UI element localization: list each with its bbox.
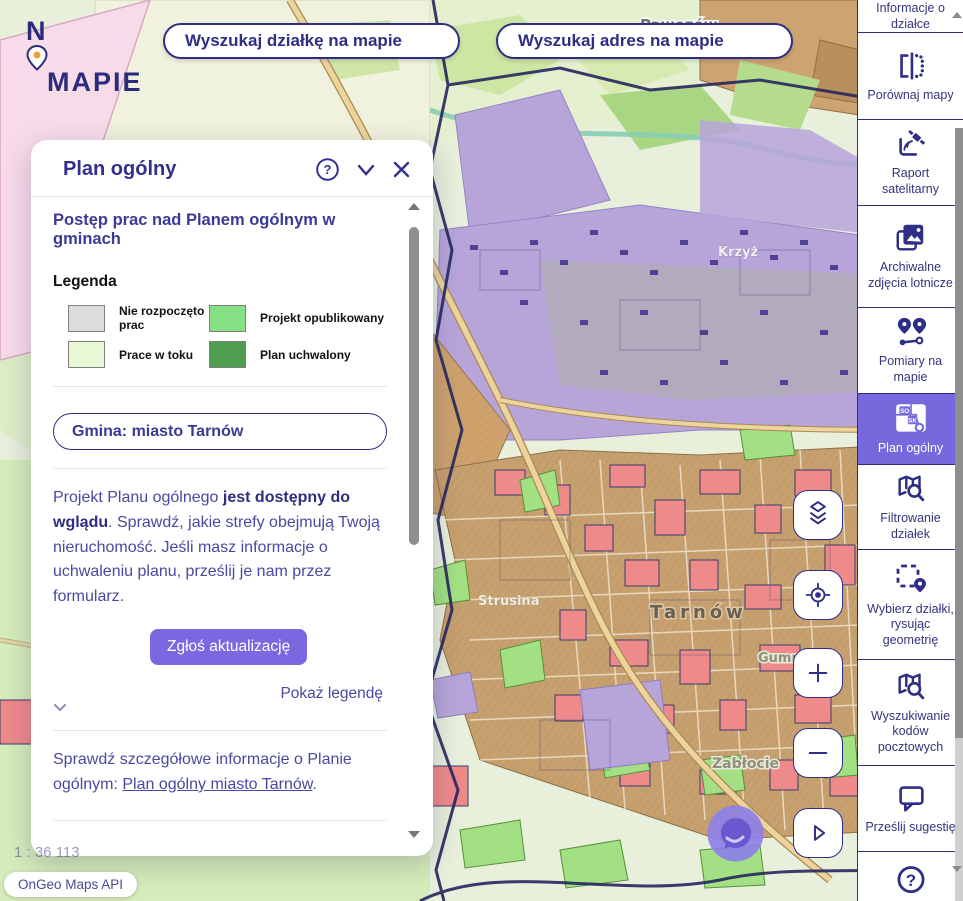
map-label-krzyz: Krzyż xyxy=(718,245,758,260)
panel-title: Plan ogólny xyxy=(63,158,315,181)
postal-codes-map-search-icon xyxy=(893,670,929,704)
layers-icon xyxy=(799,496,837,534)
sidebar-item-archiwalne-zdjecia[interactable]: Archiwalne zdjęcia lotnicze xyxy=(858,206,963,308)
panel-scrollbar[interactable] xyxy=(408,203,420,838)
svg-text:?: ? xyxy=(905,871,915,890)
sidebar-item-label: Wybierz działki, rysując geometrię xyxy=(863,602,959,649)
report-update-button[interactable]: Zgłoś aktualizację xyxy=(150,629,307,665)
sidebar-item-label: Plan ogólny xyxy=(863,441,959,457)
brand-logo-n: N xyxy=(26,16,48,46)
help-icon[interactable]: ? xyxy=(315,157,340,182)
plan-details-link[interactable]: Plan ogólny miasto Tarnów xyxy=(122,776,312,793)
legend-label: Projekt opublikowany xyxy=(260,311,387,325)
plus-icon xyxy=(799,654,837,692)
legend-swatch-adopted xyxy=(209,341,246,368)
show-legend-label: Pokaż legendę xyxy=(280,685,383,702)
geolocate-button[interactable] xyxy=(793,570,843,620)
sidebar-item-wybierz-dzialki[interactable]: Wybierz działki, rysując geometrię xyxy=(858,550,963,660)
progress-heading: Postęp prac nad Planem ogólnym w gminach xyxy=(53,211,387,249)
gmina-select[interactable]: Gmina: miasto Tarnów xyxy=(53,413,387,450)
map-label-tarnow: Tarnów xyxy=(650,602,747,623)
scroll-up-arrow[interactable] xyxy=(408,203,420,210)
legend-swatch-not-started xyxy=(68,305,105,332)
filter-parcels-map-search-icon xyxy=(893,472,929,506)
sidebar-item-filtrowanie-dzialek[interactable]: Filtrowanie działek xyxy=(858,465,963,550)
measurements-icon xyxy=(893,315,929,349)
svg-text:?: ? xyxy=(324,162,332,177)
draw-geometry-icon xyxy=(893,561,929,597)
scrollbar-thumb[interactable] xyxy=(409,227,419,545)
chevron-down-icon xyxy=(53,703,67,712)
zoom-out-button[interactable] xyxy=(793,728,843,778)
sidebar-item-porownaj-mapy[interactable]: Porównaj mapy xyxy=(858,33,963,120)
search-parcel-label: Wyszukaj działkę na mapie xyxy=(185,31,402,51)
brand-logo: N MAPIE xyxy=(26,18,143,96)
sidebar-item-pomiary-na-mapie[interactable]: Pomiary na mapie xyxy=(858,308,963,394)
search-address-button[interactable]: Wyszukaj adres na mapie xyxy=(496,23,793,59)
sidebar-item-label: Prześlij sugestię xyxy=(863,820,959,836)
legend-label: Prace w toku xyxy=(119,348,206,362)
close-icon[interactable] xyxy=(392,160,411,179)
sidebar-item-raport-satelitarny[interactable]: Raport satelitarny xyxy=(858,120,963,206)
app-window: Pawęzów Krzyż Klikowa Strusina Tarnów Za… xyxy=(0,0,963,901)
legend-swatch-in-progress xyxy=(68,341,105,368)
legend-swatch-published xyxy=(209,305,246,332)
sidebar-scrollbar-track[interactable] xyxy=(955,738,963,901)
icon-badge-so: SO xyxy=(900,408,909,415)
map-scale: 1 : 36 113 xyxy=(14,844,80,861)
scroll-down-arrow[interactable] xyxy=(408,831,420,838)
tools-sidebar: Informacje o działce Porównaj mapy xyxy=(857,0,963,901)
expand-panel-button[interactable] xyxy=(793,808,843,858)
collapse-chevron-icon[interactable] xyxy=(356,163,376,177)
map-label-zablocie: Zabłocie xyxy=(712,756,779,772)
legend-title: Legenda xyxy=(53,273,387,291)
legend-label: Nie rozpoczęto prac xyxy=(119,304,206,332)
minus-icon xyxy=(799,734,837,772)
sidebar-item-label: Raport satelitarny xyxy=(863,166,959,197)
plan-ogolny-panel: Plan ogólny ? Postęp prac nad Planem ogó… xyxy=(31,140,433,856)
sidebar-scroll-up-arrow[interactable] xyxy=(952,12,962,18)
sidebar-item-kody-pocztowe[interactable]: Wyszukiwanie kodów pocztowych xyxy=(858,660,963,766)
help-circle-icon: ? xyxy=(894,861,928,900)
sidebar-item-label: Informacje o działce xyxy=(863,1,959,32)
map-pin-icon xyxy=(26,45,48,71)
chat-widget-button[interactable] xyxy=(707,805,764,862)
zoom-in-button[interactable] xyxy=(793,648,843,698)
sidebar-item-label: Porównaj mapy xyxy=(863,88,959,104)
map-label-strusina: Strusina xyxy=(478,594,539,609)
sidebar-item-label: Archiwalne zdjęcia lotnicze xyxy=(863,260,959,291)
legend-label: Plan uchwalony xyxy=(260,348,387,362)
layers-button[interactable] xyxy=(793,490,843,540)
sidebar-item-label: Filtrowanie działek xyxy=(863,511,959,542)
play-right-icon xyxy=(799,814,837,852)
show-legend-toggle[interactable]: Pokaż legendę xyxy=(53,685,387,712)
satellite-icon xyxy=(893,127,929,161)
sidebar-item-plan-ogolny[interactable]: SO SK Plan ogólny xyxy=(858,394,963,465)
compare-maps-icon xyxy=(893,49,929,83)
sidebar-item-pomoc[interactable]: ? xyxy=(858,852,963,900)
map-attribution: OnGeo Maps API xyxy=(4,872,137,897)
legend-image: Legenda Nie rozpoczęto prac Projekt opub… xyxy=(53,273,387,368)
details-paragraph: Sprawdź szczegółowe informacje o Planie … xyxy=(53,748,387,798)
sidebar-item-label: Wyszukiwanie kodów pocztowych xyxy=(863,709,959,756)
application-paragraph: Złóż wniosek do Planu ogólnego, zadbaj o… xyxy=(53,838,387,842)
gmina-value: Gmina: miasto Tarnów xyxy=(72,423,243,441)
suggestion-bubble-icon xyxy=(893,781,929,815)
project-status-paragraph: Projekt Planu ogólnego jest dostępny do … xyxy=(53,486,387,610)
sidebar-item-informacje-o-dzialce[interactable]: Informacje o działce xyxy=(858,0,963,33)
panel-header: Plan ogólny ? xyxy=(31,140,433,182)
brand-logo-mapie: MAPIE xyxy=(47,69,143,96)
icon-badge-sk: SK xyxy=(908,417,917,424)
sidebar-scroll-down-arrow[interactable] xyxy=(952,866,962,872)
sidebar-scrollbar-thumb[interactable] xyxy=(955,128,963,738)
chat-bubble-icon xyxy=(707,805,764,862)
search-parcel-button[interactable]: Wyszukaj działkę na mapie xyxy=(163,23,460,59)
aerial-photos-icon xyxy=(892,221,929,255)
general-plan-icon: SO SK xyxy=(892,402,930,436)
locate-icon xyxy=(799,576,837,614)
sidebar-item-przeslij-sugestie[interactable]: Prześlij sugestię xyxy=(858,766,963,852)
panel-content: Postęp prac nad Planem ogólnym w gminach… xyxy=(31,197,433,842)
sidebar-item-label: Pomiary na mapie xyxy=(863,354,959,385)
search-address-label: Wyszukaj adres na mapie xyxy=(518,31,724,51)
